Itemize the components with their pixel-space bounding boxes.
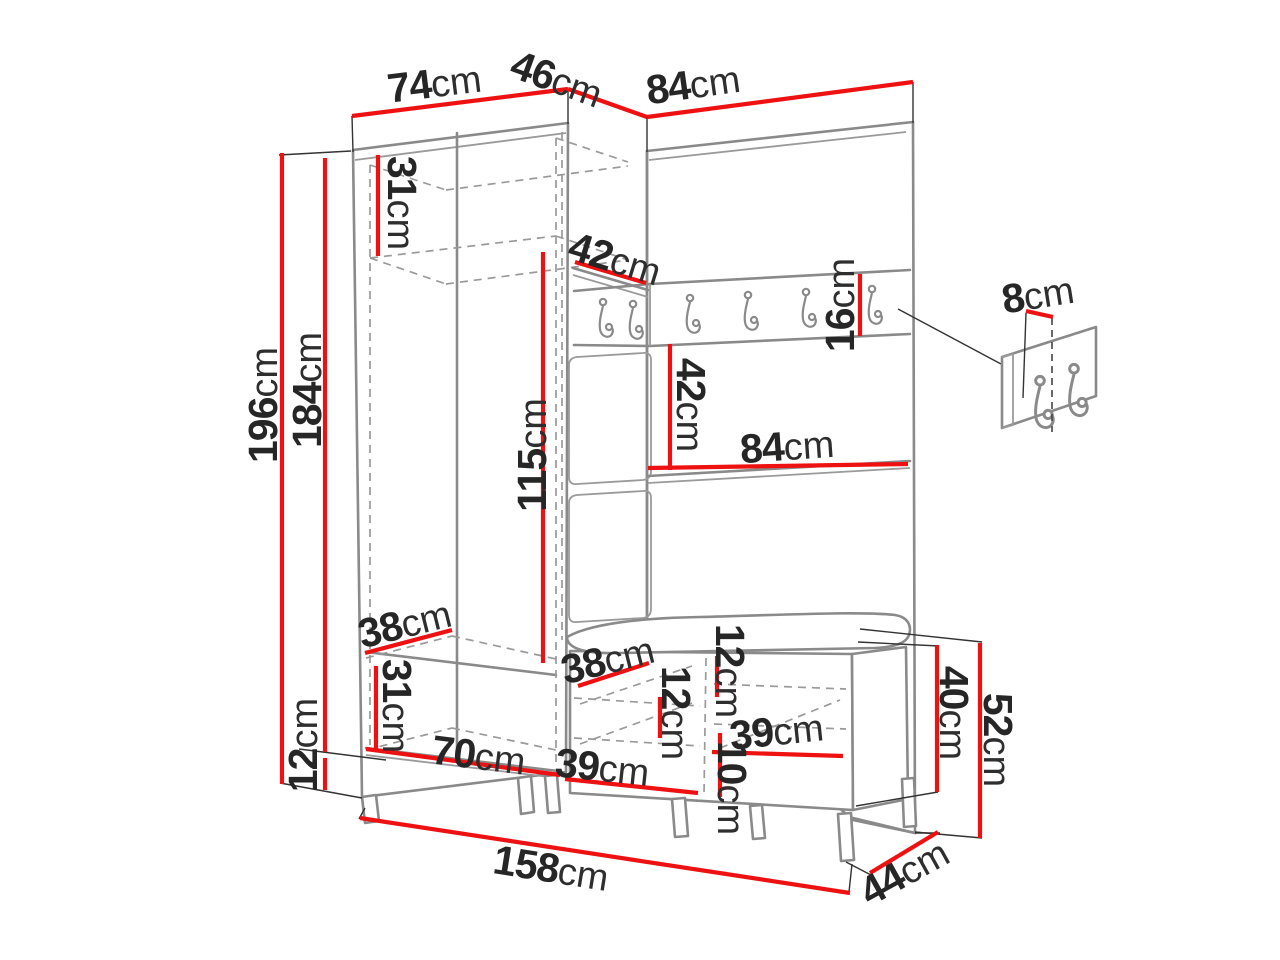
leg [750,805,765,839]
coat-hook-icon [600,299,613,337]
dim-label-top-depth: 46cm [505,41,609,116]
corner-panel-upper [569,353,651,484]
leg [838,813,854,861]
dim-label-bench-body-height: 40cm [931,666,977,760]
dim-label-total-width: 158cm [490,836,612,900]
leg [672,798,688,837]
hook-panel-detail [898,309,1096,432]
dim-label-top-shelf-height: 31cm [379,156,425,250]
dim-label-bottom-section-height: 31cm [374,659,420,753]
dim-label-bench-top-gap: 12cm [707,624,753,718]
furniture-dimension-diagram: 74cm 46cm 84cm 31cm 196cm 184cm 12cm 42c… [0,0,1280,960]
bench-side-face [852,647,908,810]
dim-label-total-depth: 44cm [852,829,957,915]
dim-label-hanging-height: 115cm [509,398,555,512]
dim-label-hook-offset: 8cm [998,266,1077,323]
dim-label-bench-total-height: 52cm [975,693,1021,787]
diagram-canvas: 74cm 46cm 84cm 31cm 196cm 184cm 12cm 42c… [0,0,1280,960]
dim-label-plinth-height: 12cm [280,698,326,792]
dim-label-rail-to-shelf: 42cm [668,358,714,452]
dim-label-hook-rail-height: 16cm [817,258,863,352]
coat-hook-icon [630,301,643,339]
corner-column [562,132,651,640]
dim-label-bench-shelf-gap: 12cm [653,666,699,760]
dim-label-body-height: 184cm [284,332,330,448]
dim-label-total-height: 196cm [240,347,286,463]
dim-label-panel-shelf-width: 84cm [738,420,835,472]
leg [902,778,916,827]
dim-label-bench-bottom-gap: 10cm [709,741,755,835]
corner-panel-lower [569,491,651,622]
